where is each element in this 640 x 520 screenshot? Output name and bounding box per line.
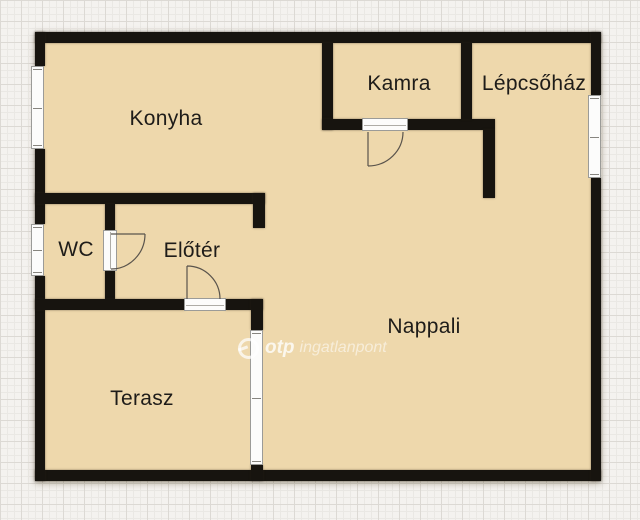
apartment-floor-area [35, 32, 601, 481]
room-label-wc: WC [58, 238, 94, 262]
floor-plan-canvas: Konyha Kamra Lépcsőház WC Előtér Nappali… [0, 0, 640, 520]
window-icon-wc-left [31, 224, 44, 276]
window-tick [33, 250, 42, 251]
wall-kamra-bottom-left [322, 119, 363, 130]
door-threshold-line [364, 125, 406, 126]
door-threshold-line [110, 232, 111, 269]
wall-konyha-corner-stub [253, 193, 265, 228]
room-label-eloter: Előtér [164, 239, 221, 263]
wall-outer-right-lower [591, 178, 601, 481]
wall-lepcsohaz-stub [483, 130, 495, 198]
window-tick [33, 227, 42, 228]
wall-outer-left-middle [35, 149, 45, 224]
room-label-terasz: Terasz [110, 387, 174, 411]
wall-kamra-left [322, 43, 333, 130]
wall-konyha-bottom [35, 193, 265, 204]
window-icon-lepcsohaz-right [588, 95, 601, 178]
wall-outer-bottom [35, 470, 601, 481]
wall-wc-eloter-lower [105, 271, 115, 300]
window-tick [590, 98, 599, 99]
wall-terasz-top-left [35, 299, 185, 310]
door-threshold-wc [103, 230, 117, 271]
window-tick [252, 398, 261, 399]
wall-outer-top [35, 32, 601, 43]
wall-terasz-right-upper [251, 299, 263, 330]
door-threshold-line [186, 305, 224, 306]
wall-outer-right-upper [591, 32, 601, 95]
wall-wc-eloter-upper [105, 204, 115, 231]
door-threshold-kamra [362, 118, 408, 131]
window-tick [33, 272, 42, 273]
window-tick [252, 461, 261, 462]
window-icon-konyha-left [31, 66, 44, 149]
room-label-lepcsohaz: Lépcsőház [482, 72, 586, 96]
room-label-konyha: Konyha [129, 107, 202, 131]
window-tick [590, 137, 599, 138]
room-label-nappali: Nappali [387, 315, 460, 339]
window-tick [252, 333, 261, 334]
wall-outer-left-upper [35, 32, 45, 66]
wall-kamra-bottom-right [407, 119, 495, 130]
wall-kamra-lepcsohaz-divider [461, 43, 472, 119]
window-tick [33, 69, 42, 70]
window-tick [33, 108, 42, 109]
room-label-kamra: Kamra [367, 72, 430, 96]
window-tick [590, 174, 599, 175]
window-icon-terasz-right [250, 330, 263, 465]
wall-terasz-right-lower [251, 465, 263, 481]
door-threshold-terasz [184, 298, 226, 311]
window-tick [33, 145, 42, 146]
